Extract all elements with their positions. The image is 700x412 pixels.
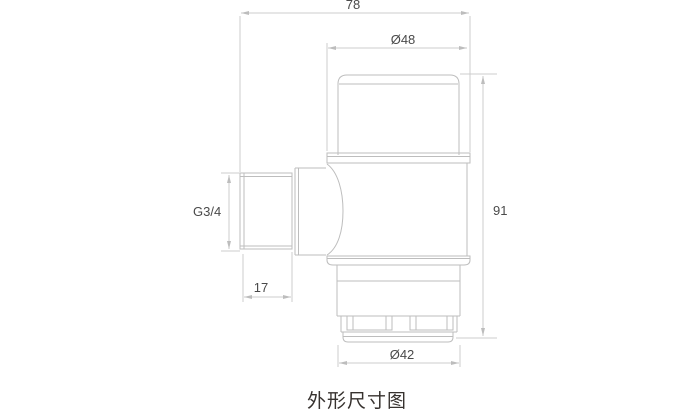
slotted-ring — [341, 316, 457, 332]
valve-cap-outline — [338, 75, 459, 155]
dimension-label-bottom-diameter: Ø42 — [390, 348, 415, 361]
dimension-label-thread-length: 17 — [254, 281, 268, 294]
dimension-label-head-diameter: Ø48 — [391, 33, 416, 46]
inlet-adapter — [295, 168, 326, 255]
dimension-overall-width — [240, 11, 470, 172]
dimension-label-inlet-thread: G3/4 — [193, 205, 221, 218]
drawing-caption: 外形尺寸图 — [307, 386, 407, 412]
dimension-head-diameter — [327, 43, 467, 151]
valve-top-flange — [327, 153, 470, 163]
lower-cylinder — [337, 265, 460, 316]
inlet-threaded-pipe — [240, 173, 292, 249]
dimension-label-overall-width: 78 — [346, 0, 360, 11]
dimension-drawing-canvas: 78 Ø48 G3/4 17 91 Ø42 外形尺寸图 — [0, 0, 700, 412]
bottom-cap — [343, 332, 453, 342]
valve-bottom-flange — [327, 256, 470, 265]
dimension-inlet-thread — [221, 173, 240, 251]
valve-body — [327, 163, 467, 256]
dimension-overall-height — [456, 74, 497, 338]
valve-outline-drawing — [0, 0, 700, 412]
dimension-label-overall-height: 91 — [493, 204, 507, 217]
